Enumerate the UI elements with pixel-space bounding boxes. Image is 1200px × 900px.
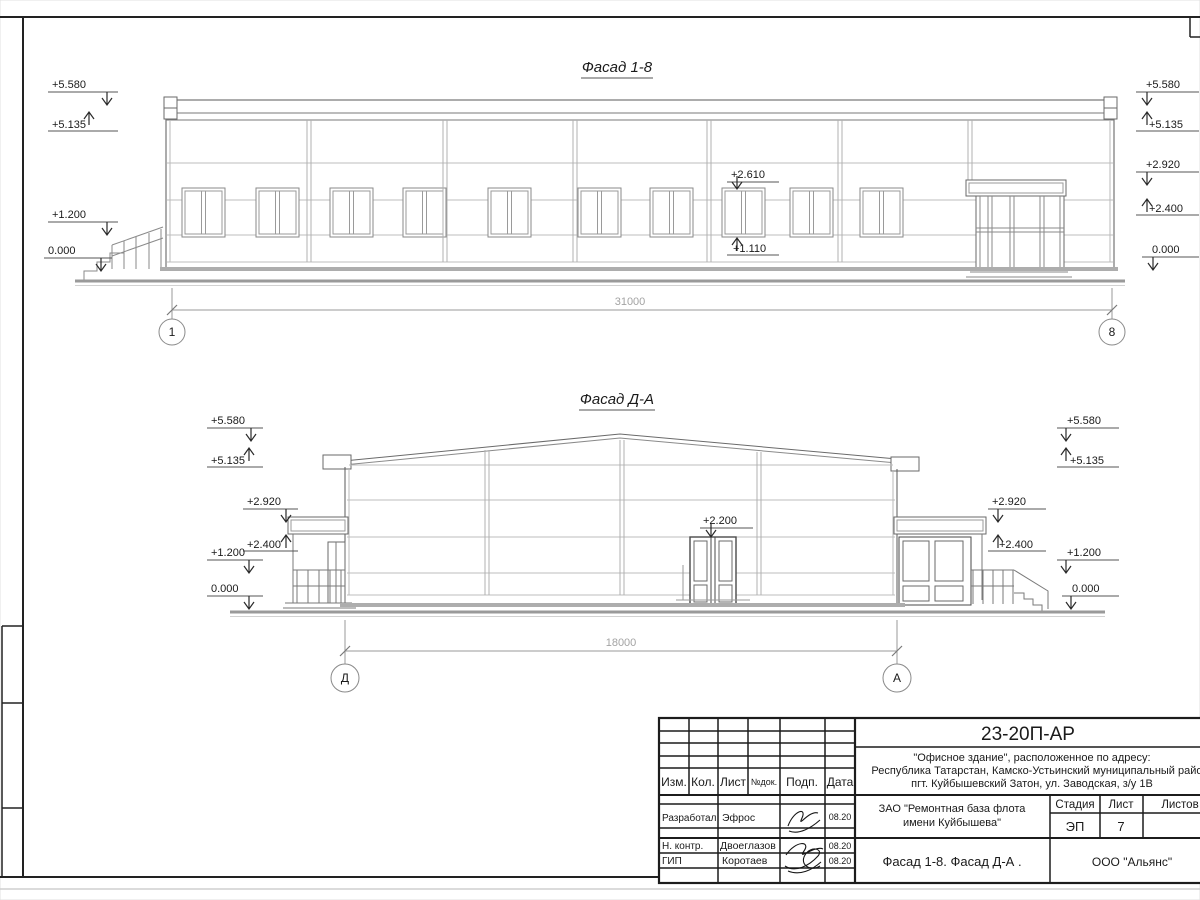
- facade-d-a-title: Фасад Д-А: [580, 391, 654, 408]
- elevation-mark-label: +1.200: [52, 209, 86, 221]
- row-role: Разработал: [662, 812, 717, 824]
- col-ndok: №док.: [751, 777, 777, 787]
- client-name: имени Куйбышева": [903, 817, 1001, 829]
- row-name: Коротаев: [722, 855, 768, 867]
- elevation-mark-label: 0.000: [1152, 244, 1180, 256]
- elevation-mark-label: +1.200: [1067, 547, 1101, 559]
- elevation-mark-label: +5.135: [1149, 119, 1183, 131]
- col-izm: Изм.: [661, 775, 687, 789]
- window: [256, 188, 299, 237]
- window: [790, 188, 833, 237]
- client-name: ЗАО "Ремонтная база флота: [879, 803, 1027, 815]
- col-kol: Кол.: [691, 775, 715, 789]
- window: [650, 188, 693, 237]
- elevation-mark-label: +5.135: [52, 119, 86, 131]
- window: [330, 188, 373, 237]
- elevation-mark-label: +2.920: [1146, 159, 1180, 171]
- row-date: 08.20: [829, 812, 852, 822]
- row-date: 08.20: [829, 856, 852, 866]
- window: [488, 188, 531, 237]
- col-list: Лист: [720, 775, 747, 789]
- doc-code: 23-20П-АР: [981, 724, 1075, 745]
- object-address: пгт. Куйбышевский Затон, ул. Заводская, …: [911, 778, 1153, 790]
- elevation-mark-label: +2.920: [247, 496, 281, 508]
- sheets-label: Листов: [1161, 799, 1198, 811]
- drawing-sheet: Фасад 1-8: [0, 0, 1200, 900]
- facade-1-8-title: Фасад 1-8: [582, 59, 653, 76]
- row-name: Двоеглазов: [720, 840, 776, 852]
- elevation-mark-label: +5.135: [1070, 455, 1104, 467]
- window: [578, 188, 621, 237]
- axis-label: Д: [341, 671, 349, 685]
- axis-label: А: [893, 671, 901, 685]
- stage-value: ЭП: [1066, 819, 1085, 834]
- sheet-label: Лист: [1109, 799, 1135, 811]
- elevation-mark-label: +5.580: [211, 415, 245, 427]
- elevation-mark-label: +2.400: [247, 539, 281, 551]
- elevation-mark-label: 0.000: [48, 245, 76, 257]
- stage-label: Стадия: [1055, 799, 1094, 811]
- elevation-mark-label: +5.580: [52, 79, 86, 91]
- object-address: Республика Татарстан, Камско-Устьинский …: [871, 765, 1200, 777]
- dimension-value: 31000: [615, 296, 646, 308]
- title-block: Изм. Кол. Лист №док. Подп. Дата Разработ…: [659, 718, 1200, 883]
- dimension-value: 18000: [606, 637, 637, 649]
- sheet-title: Фасад 1-8. Фасад Д-А .: [882, 854, 1021, 869]
- axis-label: 1: [169, 325, 176, 339]
- facade-1-8-entrance: [966, 180, 1072, 277]
- object-address: "Офисное здание", расположенное по адрес…: [913, 752, 1150, 764]
- axis-label: 8: [1109, 325, 1116, 339]
- elevation-mark-label: +1.200: [211, 547, 245, 559]
- window: [403, 188, 446, 237]
- row-role: Н. контр.: [662, 841, 703, 852]
- sheet-value: 7: [1117, 819, 1124, 834]
- row-role: ГИП: [662, 856, 682, 867]
- col-data: Дата: [827, 775, 854, 789]
- elevation-mark-label: +5.135: [211, 455, 245, 467]
- window: [860, 188, 903, 237]
- col-podp: Подп.: [786, 775, 818, 789]
- window: [722, 188, 765, 237]
- elevation-mark-label: +2.920: [992, 496, 1026, 508]
- elevation-mark-label: +2.610: [731, 169, 765, 181]
- row-name: Эфрос: [722, 812, 755, 824]
- elevation-mark-label: +5.580: [1146, 79, 1180, 91]
- elevation-mark-label: +1.110: [733, 243, 766, 255]
- drawing-canvas: Фасад 1-8: [0, 0, 1200, 900]
- elevation-mark-label: +2.400: [1149, 203, 1183, 215]
- elevation-mark-label: 0.000: [211, 583, 239, 595]
- organization-name: ООО "Альянс": [1092, 855, 1172, 869]
- elevation-mark-label: +5.580: [1067, 415, 1101, 427]
- row-date: 08.20: [829, 841, 852, 851]
- elevation-mark-label: +2.400: [999, 539, 1033, 551]
- elevation-mark-label: 0.000: [1072, 583, 1100, 595]
- elevation-mark-label: +2.200: [703, 515, 737, 527]
- window: [182, 188, 225, 237]
